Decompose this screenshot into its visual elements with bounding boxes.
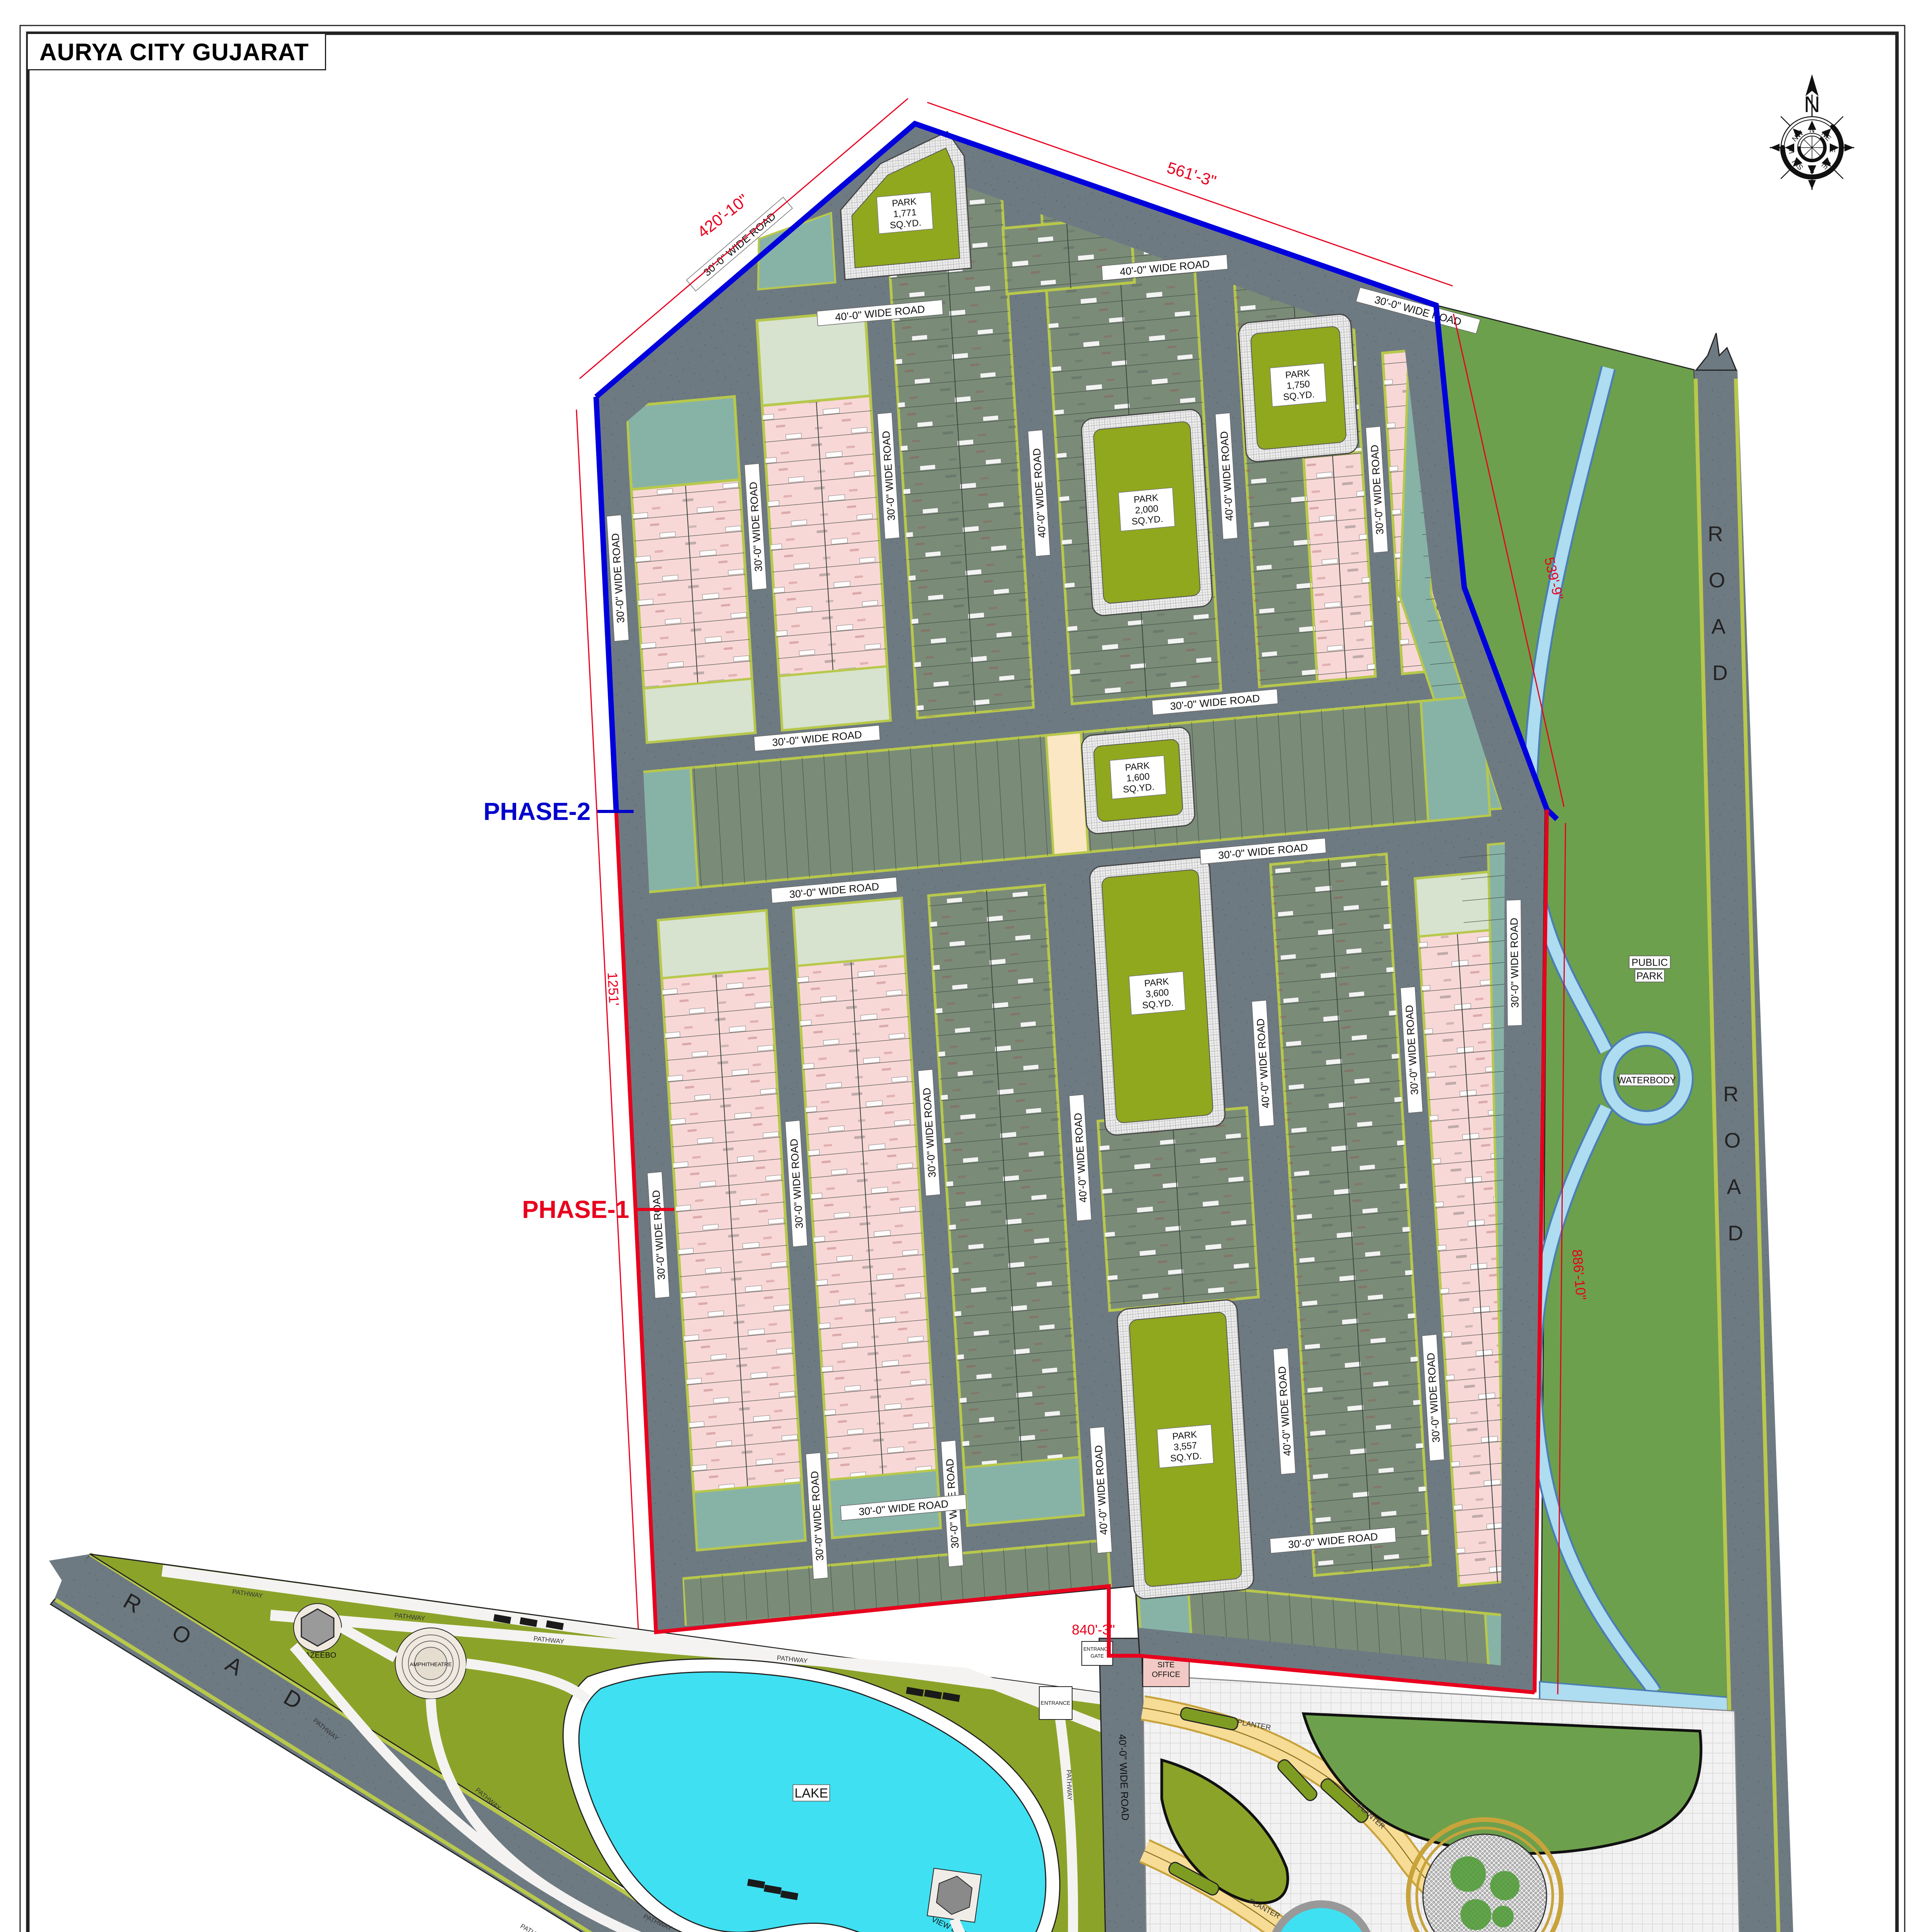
svg-text:E: E (1828, 148, 1836, 153)
svg-text:PARK: PARK (1172, 1429, 1197, 1442)
svg-text:840'-3": 840'-3" (1072, 1622, 1115, 1638)
svg-text:ENTRANCE: ENTRANCE (1040, 1700, 1070, 1706)
svg-text:PARK: PARK (1125, 760, 1150, 773)
svg-text:N: N (1804, 92, 1820, 117)
svg-text:OFFICE: OFFICE (1152, 1670, 1180, 1679)
svg-text:PUBLIC: PUBLIC (1632, 956, 1668, 968)
svg-text:PATHWAY: PATHWAY (1065, 1770, 1074, 1801)
svg-text:A: A (1727, 1175, 1741, 1199)
svg-text:2,000: 2,000 (1135, 503, 1159, 516)
svg-text:1,750: 1,750 (1286, 379, 1310, 391)
svg-text:GATE: GATE (1091, 1653, 1104, 1659)
svg-text:R: R (1723, 1082, 1739, 1106)
svg-text:O: O (1724, 1128, 1741, 1152)
svg-text:1251': 1251' (605, 972, 622, 1006)
svg-text:1,600: 1,600 (1126, 771, 1150, 784)
svg-text:PHASE-1: PHASE-1 (522, 1196, 629, 1223)
svg-text:O: O (1709, 568, 1725, 592)
svg-text:30'-0" WIDE ROAD: 30'-0" WIDE ROAD (1508, 918, 1521, 1008)
svg-text:SITE: SITE (1158, 1661, 1175, 1669)
svg-text:A: A (1712, 614, 1726, 638)
svg-text:N: N (1809, 126, 1815, 134)
svg-text:PARK: PARK (1134, 492, 1159, 505)
svg-text:3,600: 3,600 (1145, 987, 1169, 1000)
svg-text:D: D (1712, 661, 1728, 685)
svg-text:PARK: PARK (1285, 368, 1310, 381)
svg-text:S: S (1810, 166, 1815, 174)
svg-text:PHASE-2: PHASE-2 (483, 798, 590, 825)
svg-text:AMPHITHEATRE: AMPHITHEATRE (410, 1661, 452, 1667)
svg-text:D: D (1728, 1221, 1743, 1245)
svg-text:R: R (1708, 522, 1723, 546)
svg-text:1,771: 1,771 (893, 207, 917, 219)
svg-text:WATERBODY: WATERBODY (1617, 1075, 1676, 1086)
svg-text:PARK: PARK (1637, 970, 1664, 981)
svg-text:3,557: 3,557 (1173, 1440, 1197, 1452)
svg-text:W: W (1788, 147, 1796, 154)
svg-text:LAKE: LAKE (795, 1786, 828, 1801)
svg-text:PARK: PARK (1144, 976, 1169, 989)
svg-text:PARK: PARK (892, 196, 917, 209)
